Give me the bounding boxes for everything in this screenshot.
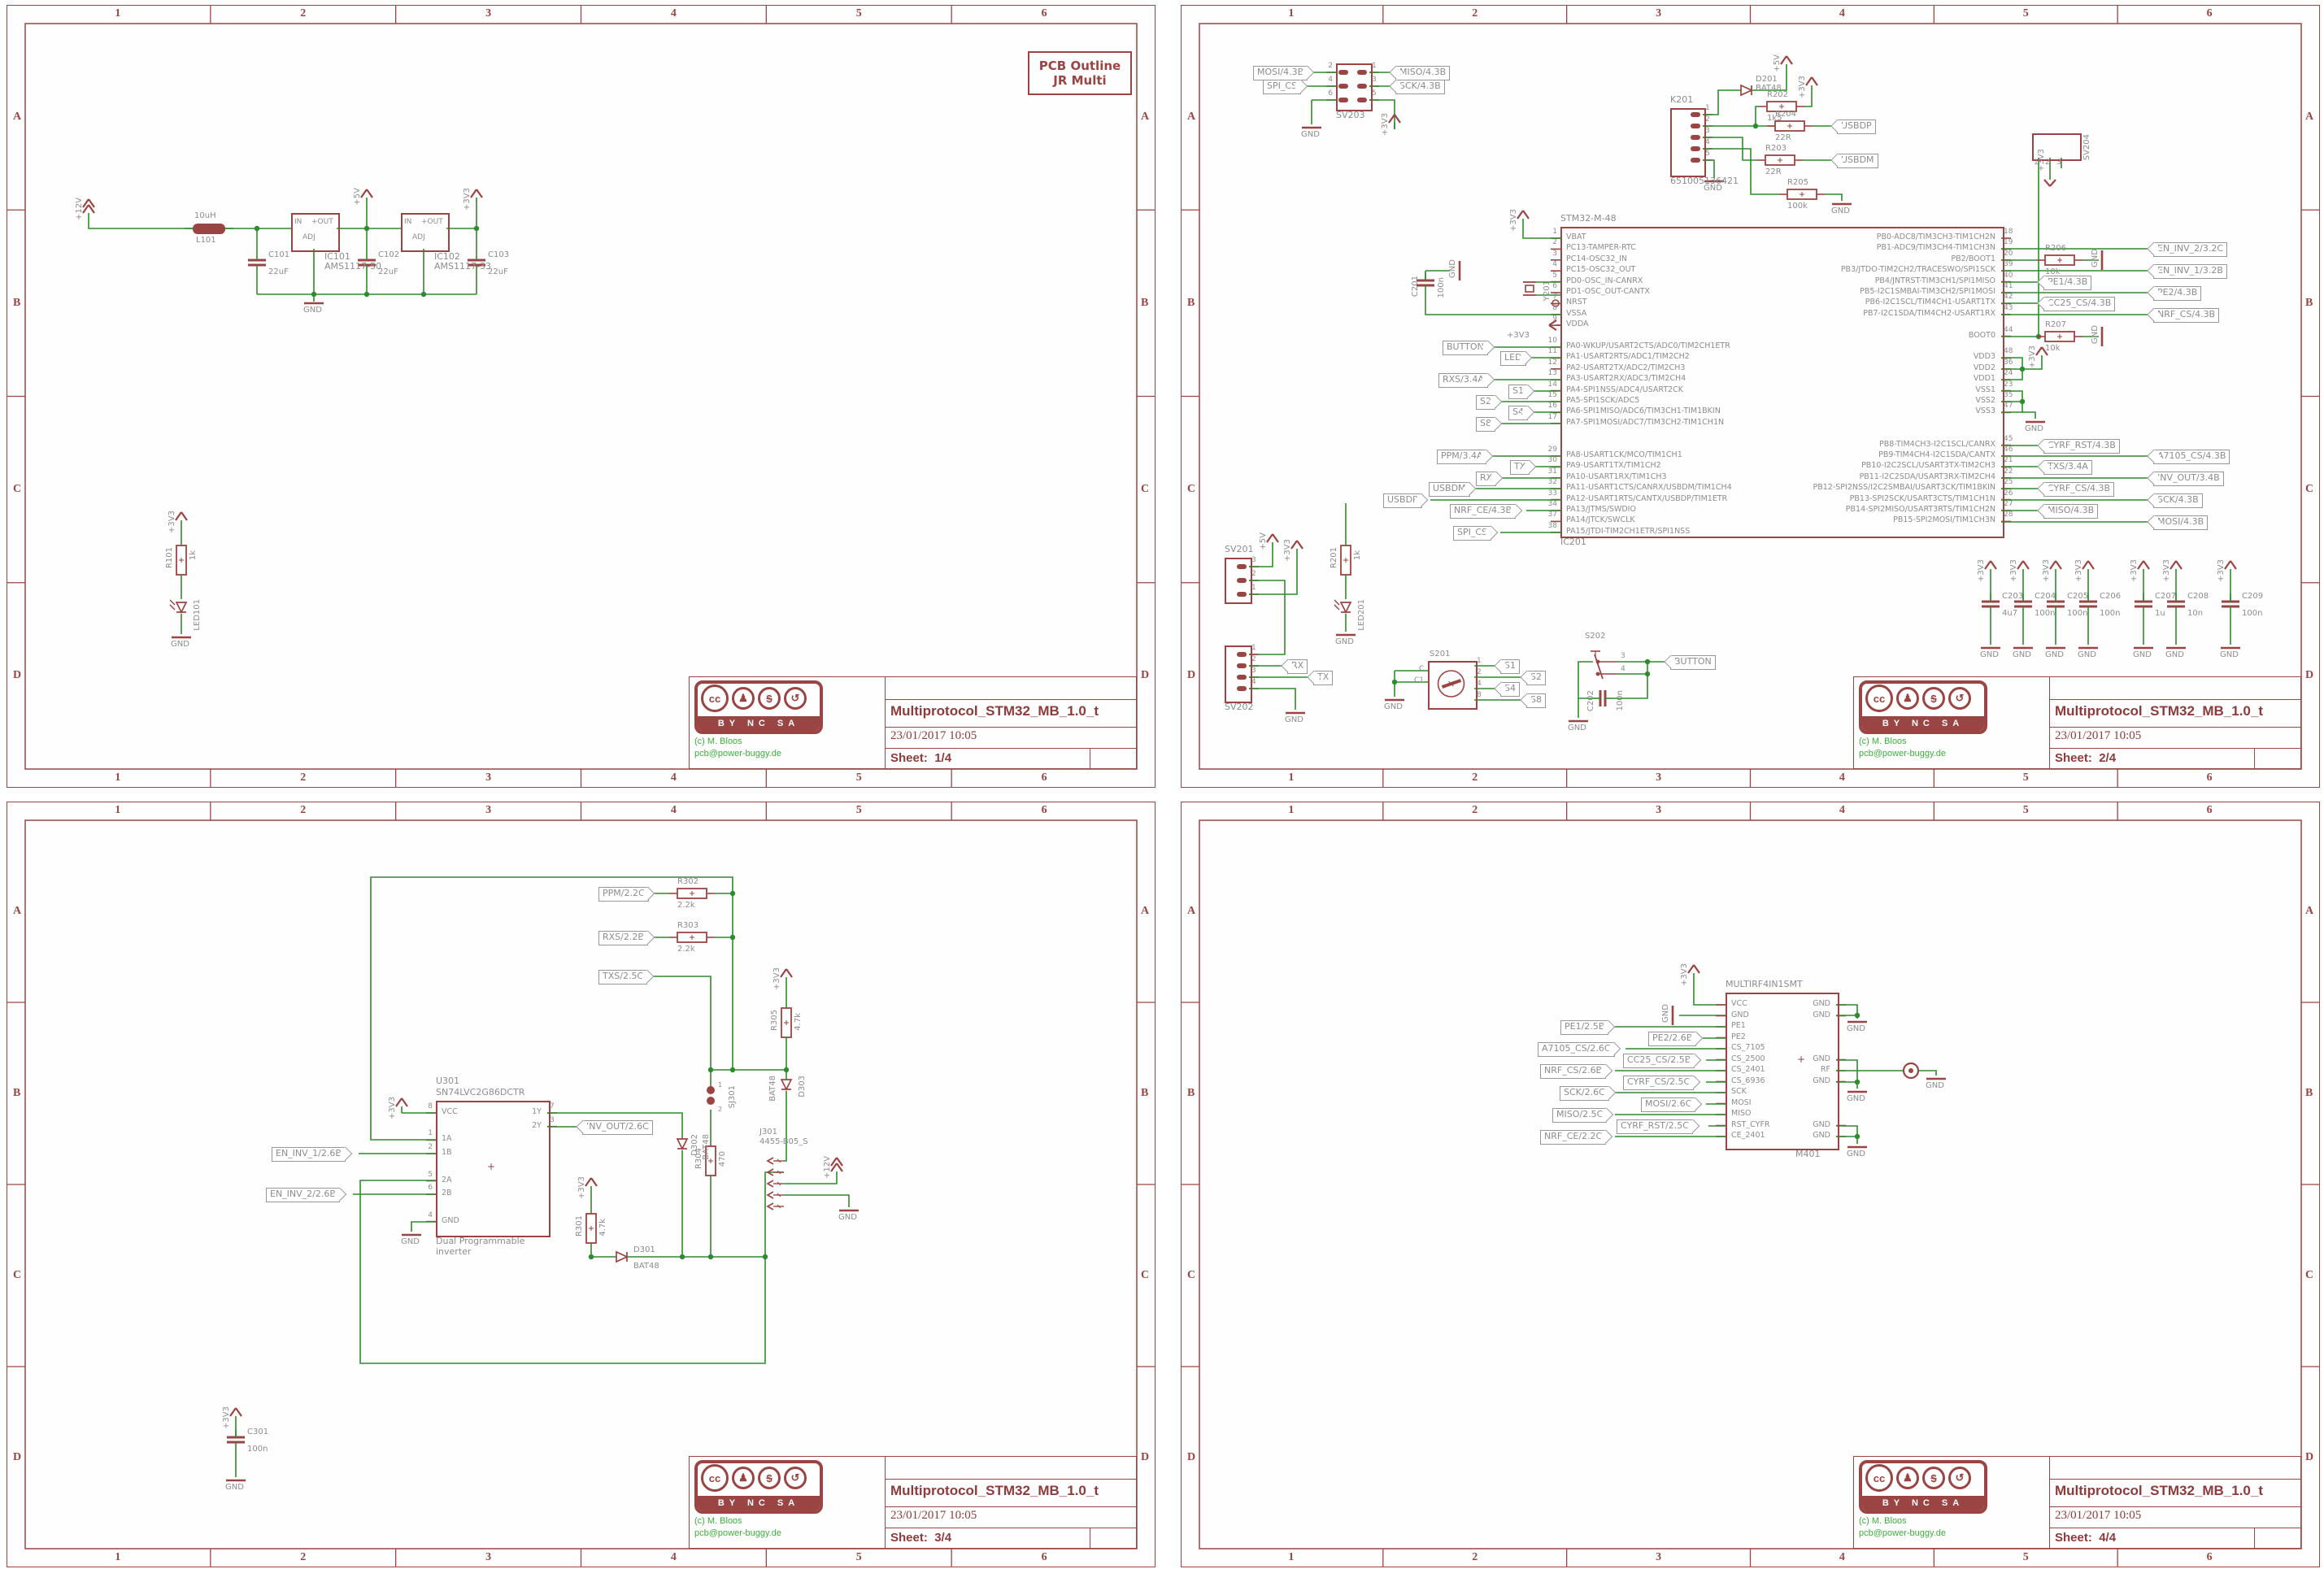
pin-number: 34 (1536, 501, 1557, 509)
pin-number: 45 (2004, 436, 2025, 444)
title-block-sub-cell (1090, 1528, 1136, 1548)
power-label: +5V (353, 188, 362, 206)
capacitor-value: 100n (2100, 609, 2120, 618)
ground-label: GND (2013, 650, 2031, 659)
resistor-value: 22R (1765, 167, 1782, 176)
power-label: +3V3 (388, 1097, 397, 1119)
inductor-value: 10uH (194, 211, 216, 220)
pin-name: PB11-I2C2SDA/USART3RX-TIM2CH4 (1784, 473, 1995, 481)
capacitor-value: 100n (247, 1445, 268, 1454)
frame-col-label: 2 (297, 804, 310, 816)
frame-row-label: B (2305, 297, 2313, 309)
net-label: RX (1476, 472, 1496, 486)
text-label: C1 (1414, 677, 1424, 685)
pin-name: PB12-SPI2NSS/I2C2SMBAI/USART3CK/TIM1BKIN (1784, 484, 1995, 492)
pin-number: 41 (2004, 283, 2025, 291)
frame-row-label: B (2305, 1087, 2313, 1099)
text-label: 100n (1437, 277, 1446, 298)
text-label: BAT48 (768, 1076, 777, 1102)
pin-number: 13 (1536, 370, 1557, 378)
frame-row-label: B (1141, 1087, 1148, 1099)
frame-row-label: B (1187, 297, 1195, 309)
component-name: inverter (436, 1247, 471, 1257)
schematic-title: Multiprotocol_STM32_MB_1.0_t (2050, 1480, 2300, 1507)
component-box (1336, 63, 1373, 111)
frame-col-label: 4 (1835, 1551, 1848, 1563)
net-label: MOSI/2.6C (1641, 1097, 1695, 1112)
text-label: 3 (1621, 653, 1625, 661)
text-label: 3 (2056, 159, 2061, 167)
copyright-text: (c) M. Bloos (694, 1516, 880, 1526)
pin-number: 3 (1705, 128, 1726, 136)
frame-row-label: C (2305, 483, 2313, 495)
net-label: SPI_CS (1263, 80, 1301, 94)
component-box (1670, 108, 1706, 177)
text-label: Y201 (1543, 280, 1552, 301)
sheet-number: 2/4 (2099, 751, 2116, 765)
net-label: SCK/2.6C (1560, 1086, 1609, 1101)
net-label: PE1/4.3B (2043, 276, 2091, 290)
pin-name: PE1 (1731, 1022, 1746, 1030)
frame-col-label: 5 (852, 7, 865, 20)
net-label: USBDP (1383, 493, 1422, 508)
power-label: +3V3 (2162, 559, 2171, 582)
resistor-name: R205 (1787, 178, 1808, 187)
pin-number: 1 (1705, 105, 1726, 113)
rotary-switch (1428, 661, 1478, 710)
capacitor-name: C103 (488, 250, 509, 259)
ground-label: GND (838, 1213, 857, 1222)
pin-name: VSSA (1566, 310, 1586, 318)
power-label: +3V3 (2037, 149, 2046, 172)
pin-name: VBAT (1566, 233, 1586, 241)
capacitor-value: 100n (2067, 609, 2087, 618)
net-label: CC25_CS/2.5B (1623, 1054, 1695, 1068)
text-label: 4 (1477, 680, 1482, 689)
frame-col-label: 5 (2019, 771, 2032, 784)
pin-name: PA10-USART1RX/TIM1CH3 (1566, 473, 1667, 481)
frame-row-label: C (1141, 483, 1149, 495)
frame-col-label: 1 (111, 771, 124, 784)
wire-layer (7, 6, 1155, 787)
text-label: BAT48 (702, 1134, 711, 1160)
net-label: NRF_CS/4.3B (2153, 308, 2219, 323)
schematic-page: 112233445566AABBCCDD+12V10uHL101C10122uF… (0, 0, 2324, 1569)
pin-name: PB5-I2C1SMBAI-TIM3CH2/SPI1MOSI (1784, 288, 1995, 296)
frame-col-label: 5 (2019, 1551, 2032, 1563)
frame-col-label: 1 (1285, 7, 1298, 20)
frame-col-label: 3 (1652, 1551, 1665, 1563)
frame-row-label: D (2305, 1451, 2313, 1463)
net-label: MOSI/4.3B (1253, 66, 1308, 80)
frame-col-label: 4 (667, 771, 680, 784)
pin-name: PB6-I2C1SCL/TIM4CH1-USART1TX (1784, 298, 1995, 306)
pin-name: PA9-USART1TX/TIM1CH2 (1566, 462, 1661, 470)
net-label: EN_INV_2/3.2C (2153, 242, 2227, 257)
ground-label: GND (2025, 424, 2043, 433)
pin-name: 1B (442, 1149, 452, 1157)
resistor-value: 1k (189, 550, 198, 560)
pin-number: 15 (1536, 392, 1557, 400)
ground-label: GND (1301, 130, 1320, 139)
text-label: D303 (798, 1076, 807, 1097)
pin-number: 4 (1536, 261, 1557, 269)
resistor-name: R303 (677, 921, 699, 930)
cc-icon: cc (1865, 685, 1893, 712)
pin-number: 29 (1536, 446, 1557, 454)
cc-license-badge: cc ♟ $ ↺ BY NC SA (694, 1460, 823, 1514)
text-label: C (1419, 666, 1424, 674)
text-label: 2 (1477, 669, 1482, 677)
net-label: LED (1500, 351, 1526, 366)
pin-number: 3 (1251, 667, 1273, 676)
frame-row-label: D (2305, 669, 2313, 681)
frame-col-label: 6 (2203, 1551, 2216, 1563)
pin-name: VDD3 (1784, 353, 1995, 361)
frame-col-label: 4 (667, 1551, 680, 1563)
schematic-date: 23/01/2017 10:05 (886, 1507, 1136, 1528)
schematic-title: Multiprotocol_STM32_MB_1.0_t (886, 700, 1136, 728)
ground-label: GND (401, 1237, 420, 1246)
pin-number: 1 (1251, 645, 1273, 653)
pin-number: 3 (1372, 76, 1393, 85)
ground-label: GND (1335, 637, 1354, 646)
pin-name: PA11-USART1CTS/CANRX/USBDM/TIM1CH4 (1566, 484, 1732, 492)
component-name: U301 (436, 1076, 459, 1086)
title-block-sub-cell (2254, 749, 2300, 768)
resistor-value: 2.2k (677, 945, 695, 954)
pin-number: 31 (1536, 468, 1557, 476)
resistor-name: R301 (575, 1215, 584, 1237)
net-label: SCK/4.3B (1395, 80, 1445, 94)
net-label: PPM/2.2C (598, 887, 649, 902)
by-icon: ♟ (1896, 687, 1919, 710)
cc-band-label: BY NC SA (1862, 1496, 1984, 1510)
power-label: +3V3 (577, 1176, 586, 1199)
pin-name: PA14/JTCK/SWCLK (1566, 516, 1635, 524)
component-box (1225, 558, 1252, 604)
text-label: IN (404, 219, 411, 227)
power-label: +3V3 (1798, 76, 1807, 98)
text-label: 8 (1477, 692, 1482, 700)
pin-name: MISO (1731, 1110, 1752, 1118)
title-block-empty-cell (886, 677, 1136, 700)
net-label: PE1/2.5B (1560, 1020, 1608, 1035)
frame-row-label: D (13, 1451, 21, 1463)
pin-number: 16 (1536, 402, 1557, 411)
frame-col-label: 2 (297, 7, 310, 20)
pin-number: 3 (1536, 250, 1557, 259)
frame-row-label: A (2305, 111, 2313, 123)
capacitor-name: C101 (268, 250, 289, 259)
frame-col-label: 3 (1652, 7, 1665, 20)
pin-number: 1 (411, 1130, 433, 1138)
frame-col-label: 5 (852, 1551, 865, 1563)
net-label: USBDP (1837, 120, 1876, 134)
sheet-label: Sheet: (890, 751, 928, 765)
frame-col-label: 1 (1285, 804, 1298, 816)
ground-label: GND (225, 1483, 244, 1492)
frame-col-label: 4 (1835, 804, 1848, 816)
title-block-empty-cell (2050, 1457, 2300, 1480)
capacitor-name: C207 (2155, 592, 2176, 601)
resistor-name: R204 (1775, 110, 1796, 119)
ground-label: GND (1704, 184, 1722, 193)
resistor-name: R101 (165, 547, 174, 568)
frame-row-label: C (1141, 1269, 1149, 1281)
pin-number: 33 (1536, 490, 1557, 498)
net-label: NRF_CE/4.3B (1450, 504, 1516, 519)
ground-label: GND (2220, 650, 2239, 659)
nc-icon: $ (1922, 687, 1945, 710)
pin-number: 2 (411, 1144, 433, 1152)
pin-name: PD1-OSC_OUT-CANTX (1566, 288, 1650, 296)
text-label: IN (294, 219, 302, 227)
email-text: pcb@power-buggy.de (694, 1528, 880, 1538)
capacitor-value: 22uF (488, 267, 508, 276)
net-label: PPM/3.4A (1437, 450, 1486, 464)
pin-number: 10 (1536, 337, 1557, 346)
component-name: MULTIRF4IN1SMT (1726, 980, 1803, 989)
frame-col-label: 6 (2203, 771, 2216, 784)
pin-number: 39 (2004, 261, 2025, 269)
ground-label: GND (171, 640, 189, 649)
cc-license-badge: cc ♟ $ ↺ BY NC SA (1859, 1460, 1987, 1514)
text-label: + (1797, 1054, 1805, 1065)
pin-number: 32 (1536, 479, 1557, 487)
note-box: PCB OutlineJR Multi (1028, 51, 1132, 95)
sheet-label: Sheet: (2055, 1531, 2092, 1545)
net-label: CYRF_RST/2.5C (1617, 1119, 1693, 1134)
net-label: MISO/4.3B (1395, 66, 1450, 80)
ground-label: GND (1980, 650, 1999, 659)
power-label: +3V3 (463, 188, 472, 211)
pin-name: PB9-TIM4CH4-I2C1SDA/CANTX (1784, 451, 1995, 459)
pin-number: 2 (1536, 239, 1557, 247)
frame-col-label: 1 (1285, 771, 1298, 784)
net-label: RXS/2.2B (598, 931, 648, 945)
frame-col-label: 6 (2203, 7, 2216, 20)
text-label: 4 (1621, 666, 1625, 674)
pin-number: 9 (1536, 315, 1557, 324)
pin-name: VSS2 (1784, 397, 1995, 405)
pin-number: 42 (2004, 293, 2025, 302)
frame-row-label: D (13, 669, 21, 681)
cc-license-badge: cc ♟ $ ↺ BY NC SA (1859, 680, 1987, 734)
frame-row-label: C (13, 483, 21, 495)
component-name: K201 (1670, 95, 1693, 105)
title-block-empty-cell (886, 1457, 1136, 1480)
frame-col-label: 6 (1038, 771, 1051, 784)
sa-icon: ↺ (784, 1467, 807, 1489)
ground-label: GND (1661, 1004, 1670, 1023)
pin-number: 5 (1536, 272, 1557, 280)
net-label: MOSI/4.3B (2153, 515, 2208, 530)
capacitor-value: 1u (2155, 609, 2165, 618)
pin-number: 12 (1536, 359, 1557, 367)
net-label: EN_INV_2/2.6B (266, 1188, 340, 1202)
ground-label: GND (2045, 650, 2064, 659)
pin-name: PB7-I2C1SDA/TIM4CH2-USART1RX (1784, 310, 1995, 318)
pin-name: PB2/BOOT1 (1784, 255, 1995, 263)
cc-band-label: BY NC SA (698, 1496, 820, 1510)
net-label: CYRF_RST/4.3B (2043, 439, 2120, 454)
pin-name: GND (1733, 1121, 1830, 1129)
text-label: 100n (1616, 690, 1625, 711)
capacitor-value: 22uF (378, 267, 398, 276)
license-block: cc ♟ $ ↺ BY NC SA (c) M. Bloos pcb@power… (1853, 676, 2049, 769)
copyright-text: (c) M. Bloos (694, 737, 880, 746)
sa-icon: ↺ (1948, 1467, 1971, 1489)
pin-number: 4 (411, 1212, 433, 1220)
pin-name: PA6-SPI1MISO/ADC6/TIM3CH1-TIM1BKIN (1566, 407, 1721, 415)
capacitor-name: C204 (2035, 592, 2056, 601)
power-label: +3V3 (222, 1406, 231, 1429)
pin-name: PC13-TAMPER-RTC (1566, 244, 1636, 252)
sheet-number: 3/4 (934, 1531, 951, 1545)
by-icon: ♟ (1896, 1467, 1919, 1489)
net-label: S1 (1508, 385, 1528, 399)
pin-number: 3 (1251, 557, 1273, 565)
pin-name: VDDA (1566, 320, 1588, 328)
sa-icon: ↺ (784, 687, 807, 710)
by-icon: ♟ (732, 687, 755, 710)
ground-label: GND (1847, 1024, 1865, 1033)
component-name: SN74LVC2G86DCTR (436, 1088, 524, 1097)
pin-name: PA13/JTMS/SWDIO (1566, 506, 1636, 514)
resistor-name: R201 (1330, 547, 1338, 568)
resistor-value: 100k (1787, 202, 1808, 211)
pin-number: 2 (1251, 571, 1273, 579)
pin-name: GND (1733, 1055, 1830, 1063)
frame-col-label: 5 (2019, 804, 2032, 816)
pin-number: 20 (2004, 250, 2025, 259)
capacitor-name: C102 (378, 250, 399, 259)
pin-number: 21 (2004, 457, 2025, 465)
resistor-name: R305 (770, 1010, 779, 1031)
ground-label: GND (1831, 206, 1850, 215)
pin-name: GND (1733, 1000, 1830, 1008)
text-label: D201 (1756, 75, 1778, 84)
schematic-date: 23/01/2017 10:05 (2050, 728, 2300, 749)
sheet-1-canvas: 112233445566AABBCCDD+12V10uHL101C10122uF… (7, 6, 1155, 787)
schematic-title: Multiprotocol_STM32_MB_1.0_t (2050, 700, 2300, 728)
pin-number: 22 (2004, 468, 2025, 476)
pin-number: 37 (1536, 511, 1557, 519)
copyright-text: (c) M. Bloos (1859, 737, 2044, 746)
frame-col-label: 6 (1038, 7, 1051, 20)
capacitor-value: 10n (2187, 609, 2203, 618)
ground-label: GND (2133, 650, 2152, 659)
sheet-3-canvas: 112233445566AABBCCDDPPM/2.2CR3022.2kRXS/… (7, 802, 1155, 1567)
pin-name: PA3-USART2RX/ADC3/TIM2CH4 (1566, 375, 1686, 383)
pin-number: 5 (1372, 90, 1393, 98)
net-label: TXS/3.4A (2043, 460, 2092, 475)
nc-icon: $ (758, 1467, 781, 1489)
frame-col-label: 3 (482, 1551, 495, 1563)
net-label: CC25_CS/4.3B (2043, 297, 2115, 311)
pin-number: 25 (2004, 479, 2025, 487)
license-block: cc ♟ $ ↺ BY NC SA (c) M. Bloos pcb@power… (1853, 1456, 2049, 1549)
email-text: pcb@power-buggy.de (694, 749, 880, 758)
frame-col-label: 2 (297, 771, 310, 784)
pin-name: PA1-USART2RTS/ADC1/TIM2CH2 (1566, 353, 1690, 361)
text-label: AMS1117-33 (434, 262, 491, 272)
resistor-value: 470 (718, 1151, 727, 1167)
pin-number: 46 (2004, 446, 2025, 454)
frame-row-label: D (1187, 1451, 1195, 1463)
frame-row-label: A (13, 905, 21, 917)
frame-row-label: A (13, 111, 21, 123)
component-box (1225, 645, 1252, 703)
title-block-empty-cell (2050, 677, 2300, 700)
text-label: D302 (690, 1134, 699, 1156)
net-label: EN_INV_1/2.6B (272, 1147, 346, 1162)
capacitor-name: C205 (2067, 592, 2088, 601)
pin-name: PC15-OSC32_OUT (1566, 266, 1635, 274)
component-name: SV202 (1225, 702, 1254, 712)
component-name: SV203 (1336, 111, 1365, 120)
pin-name: PA7-SPI1MOSI/ADC7/TIM3CH2-TIM1CH1N (1566, 419, 1724, 427)
ground-label: GND (1847, 1094, 1865, 1103)
pin-number: 1 (1536, 228, 1557, 237)
net-label: S8 (1476, 417, 1495, 432)
sheet-4: 112233445566AABBCCDD+3V3GNDMULTIRF4IN1SM… (1181, 802, 2320, 1567)
nc-icon: $ (758, 687, 781, 710)
text-label: SV204 (2082, 134, 2091, 160)
pin-name: VSS1 (1784, 386, 1995, 394)
net-label: S4 (1508, 406, 1528, 420)
text-label: S201 (1430, 650, 1450, 658)
title-block: cc ♟ $ ↺ BY NC SA (c) M. Bloos pcb@power… (1853, 676, 2301, 769)
ground-label: GND (1448, 259, 1457, 278)
pin-name: PB15-SPI2MOSI/TIM1CH3N (1784, 516, 1995, 524)
pin-number: 2 (1705, 116, 1726, 124)
net-label: TXS/2.5C (598, 970, 647, 984)
capacitor-name: C203 (2002, 592, 2023, 601)
license-block: cc ♟ $ ↺ BY NC SA (c) M. Bloos pcb@power… (689, 676, 885, 769)
frame-row-label: A (2305, 905, 2313, 917)
text-label: AMS1117-50 (324, 262, 381, 272)
net-label: S4 (1500, 682, 1520, 697)
pin-number: 14 (1536, 381, 1557, 389)
pin-name: PB4/JNTRST-TIM3CH1/SPI1MISO (1784, 277, 1995, 285)
pin-number: 18 (2004, 228, 2025, 237)
frame-col-label: 4 (1835, 7, 1848, 20)
frame-col-label: 3 (1652, 804, 1665, 816)
power-label: +12V (823, 1156, 832, 1179)
pin-name: GND (1733, 1077, 1830, 1085)
frame-row-label: A (1141, 111, 1149, 123)
text-label: + (487, 1162, 495, 1172)
net-label: PE2/2.6B (1648, 1032, 1696, 1046)
pin-name: 1A (442, 1135, 452, 1143)
power-label: +3V3 (2130, 559, 2139, 582)
pin-name: VSS3 (1784, 407, 1995, 415)
pin-number: 26 (2004, 490, 2025, 498)
pin-number: 23 (2004, 381, 2025, 389)
title-block: cc ♟ $ ↺ BY NC SA (c) M. Bloos pcb@power… (1853, 1456, 2301, 1549)
frame-col-label: 5 (852, 771, 865, 784)
text-label: +3V3 (1507, 331, 1530, 340)
net-label: PE2/4.3B (2153, 286, 2201, 301)
pin-name: 2B (442, 1189, 452, 1197)
power-label: +3V3 (2042, 559, 2051, 582)
text-label: 2 (718, 1106, 722, 1114)
frame-row-label: A (1141, 905, 1149, 917)
frame-col-label: 2 (1469, 804, 1482, 816)
power-label: +3V3 (2217, 559, 2226, 582)
